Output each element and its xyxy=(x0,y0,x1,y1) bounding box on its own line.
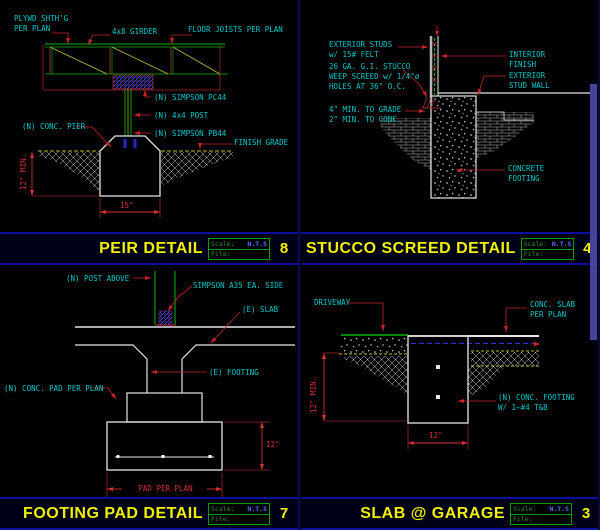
right-edge-strip xyxy=(590,84,597,340)
file-label: File: xyxy=(211,515,231,523)
scale-box: Scale:N.T.S File: xyxy=(521,238,575,260)
detail-title: FOOTING PAD DETAIL xyxy=(23,505,203,523)
leaders xyxy=(90,278,240,399)
label-floor-joists: FLOOR JOISTS PER PLAN xyxy=(188,25,283,35)
dim-pad-width: PAD PER PLAN xyxy=(124,485,207,493)
file-label: File: xyxy=(524,250,544,258)
scale-label: Scale: xyxy=(524,240,547,248)
garage-footing xyxy=(408,336,468,423)
label-finish-grade: FINISH GRADE xyxy=(234,138,288,148)
scale-label: Scale: xyxy=(513,505,536,513)
titlebar-footing-pad: FOOTING PAD DETAIL Scale:N.T.S File: 7 xyxy=(0,497,298,530)
label-simpson-a35: SIMPSON A35 EA. SIDE xyxy=(193,281,283,291)
detail-number: 3 xyxy=(577,505,595,522)
label-driveway: DRIVEWAY xyxy=(314,298,350,308)
label-weep-screed: 26 GA. G.I. STUCCO WEEP SCREED w/ 1/4"ø … xyxy=(329,62,419,91)
detail-title: PEIR DETAIL xyxy=(99,240,203,258)
dim-pad-height: 12" xyxy=(266,441,280,449)
label-existing-slab: (E) SLAB xyxy=(242,305,278,315)
cad-detail-sheet: PLYWD SHTH'G PER PLAN 4x8 GIRDER FLOOR J… xyxy=(0,0,600,530)
label-new-conc-footing: (N) CONC. FOOTING W/ 1—#4 T&B xyxy=(498,393,575,413)
quadrant-peir-detail: PLYWD SHTH'G PER PLAN 4x8 GIRDER FLOOR J… xyxy=(0,0,298,265)
scale-value: N.T.S xyxy=(549,505,569,513)
dim-footing-depth: 12" MIN. xyxy=(310,377,318,413)
label-plywd-sheathing: PLYWD SHTH'G PER PLAN xyxy=(14,14,68,34)
label-interior-finish: INTERIOR FINISH xyxy=(509,50,545,70)
label-conc-pier: (N) CONC. PIER xyxy=(22,122,85,132)
dim-footing-width: 12" xyxy=(429,432,443,440)
post-above xyxy=(155,271,176,325)
dim-pier-width: 15" xyxy=(120,202,134,210)
label-4x4-post: (N) 4x4 POST xyxy=(154,111,208,121)
label-exterior-studs: EXTERIOR STUDS w/ 15# FELT xyxy=(329,40,392,60)
label-existing-footing: (E) FOOTING xyxy=(209,368,259,378)
scale-label: Scale: xyxy=(211,240,234,248)
label-simpson-pc44: (N) SIMPSON PC44 xyxy=(154,93,226,103)
titlebar-stucco: STUCCO SCREED DETAIL Scale:N.T.S File: 4 xyxy=(301,232,600,265)
label-exterior-stud-wall: EXTERIOR STUD WALL xyxy=(509,71,550,91)
footing-pad-drawing xyxy=(0,265,298,497)
quadrant-stucco-screed: EXTERIOR STUDS w/ 15# FELT 26 GA. G.I. S… xyxy=(301,0,600,265)
label-conc-pad: (N) CONC. PAD PER PLAN xyxy=(4,384,103,394)
file-label: File: xyxy=(513,515,533,523)
label-conc-slab: CONC. SLAB PER PLAN xyxy=(530,300,575,320)
detail-number: 8 xyxy=(275,240,293,257)
titlebar-slab-garage: SLAB @ GARAGE Scale:N.T.S File: 3 xyxy=(301,497,600,530)
detail-title: SLAB @ GARAGE xyxy=(360,505,505,523)
scale-box: Scale:N.T.S File: xyxy=(510,503,572,525)
quadrant-footing-pad: (N) POST ABOVE SIMPSON A35 EA. SIDE (E) … xyxy=(0,265,298,530)
pier-and-grade xyxy=(38,136,233,196)
scale-box: Scale:N.T.S File: xyxy=(208,238,270,260)
detail-number: 7 xyxy=(275,505,293,522)
label-simpson-pb44: (N) SIMPSON PB44 xyxy=(154,129,226,139)
scale-value: N.T.S xyxy=(247,240,267,248)
label-min-clearances: 4" MIN. TO GRADE 2" MIN. TO CONC. xyxy=(329,105,401,125)
label-concrete-footing: CONCRETE FOOTING xyxy=(508,164,544,184)
titlebar-peir: PEIR DETAIL Scale:N.T.S File: 8 xyxy=(0,232,298,265)
post-cap xyxy=(113,75,153,136)
dim-pier-depth: 12" MIN. xyxy=(20,154,28,190)
label-girder: 4x8 GIRDER xyxy=(112,27,157,37)
scale-box: Scale:N.T.S File: xyxy=(208,503,270,525)
quadrant-divider xyxy=(298,0,300,530)
file-label: File: xyxy=(211,250,231,258)
quadrant-slab-garage: DRIVEWAY CONC. SLAB PER PLAN (N) CONC. F… xyxy=(301,265,600,530)
scale-value: N.T.S xyxy=(247,505,267,513)
scale-label: Scale: xyxy=(211,505,234,513)
scale-value: N.T.S xyxy=(552,240,572,248)
label-post-above: (N) POST ABOVE xyxy=(66,274,129,284)
detail-title: STUCCO SCREED DETAIL xyxy=(306,240,516,258)
